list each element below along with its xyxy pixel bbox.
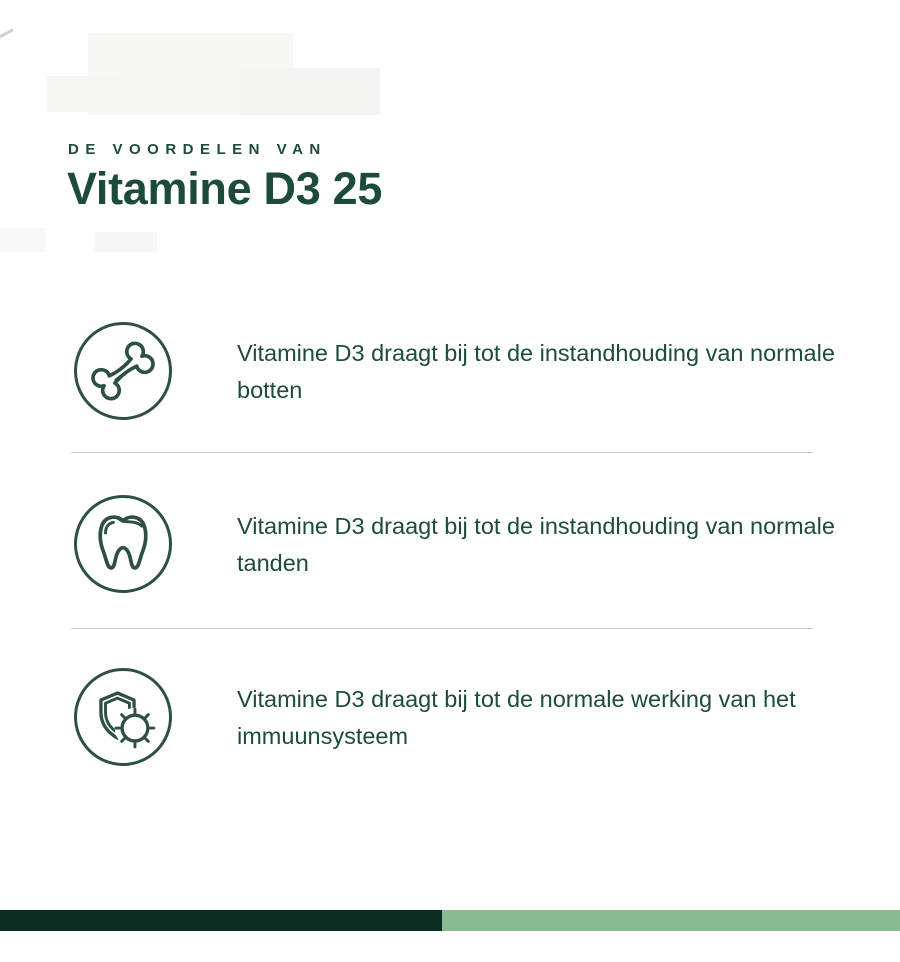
footer-bar-dark xyxy=(0,910,442,931)
shield-virus-icon xyxy=(74,668,172,766)
tooth-icon xyxy=(74,495,172,593)
benefit-text-teeth: Vitamine D3 draagt bij tot de instandhou… xyxy=(237,508,857,582)
divider xyxy=(71,452,813,453)
footer-bar-light xyxy=(442,910,900,931)
benefit-text-immune: Vitamine D3 draagt bij tot de normale we… xyxy=(237,681,857,755)
background-artifact xyxy=(0,228,45,252)
background-artifact xyxy=(240,68,380,115)
page-title: Vitamine D3 25 xyxy=(67,162,382,216)
corner-artifact xyxy=(0,28,14,38)
bone-icon xyxy=(74,322,172,420)
section-kicker: DE VOORDELEN VAN xyxy=(68,141,327,158)
benefit-text-bones: Vitamine D3 draagt bij tot de instandhou… xyxy=(237,335,857,409)
bone-icon-svg xyxy=(77,325,169,417)
benefits-infographic: DE VOORDELEN VAN Vitamine D3 25 Vitamine… xyxy=(0,0,900,962)
tooth-icon-svg xyxy=(77,498,169,590)
background-artifact xyxy=(47,76,122,112)
background-artifact xyxy=(95,232,157,252)
shield-virus-icon-svg xyxy=(77,671,169,763)
divider xyxy=(71,628,813,629)
background-artifact xyxy=(88,33,293,115)
